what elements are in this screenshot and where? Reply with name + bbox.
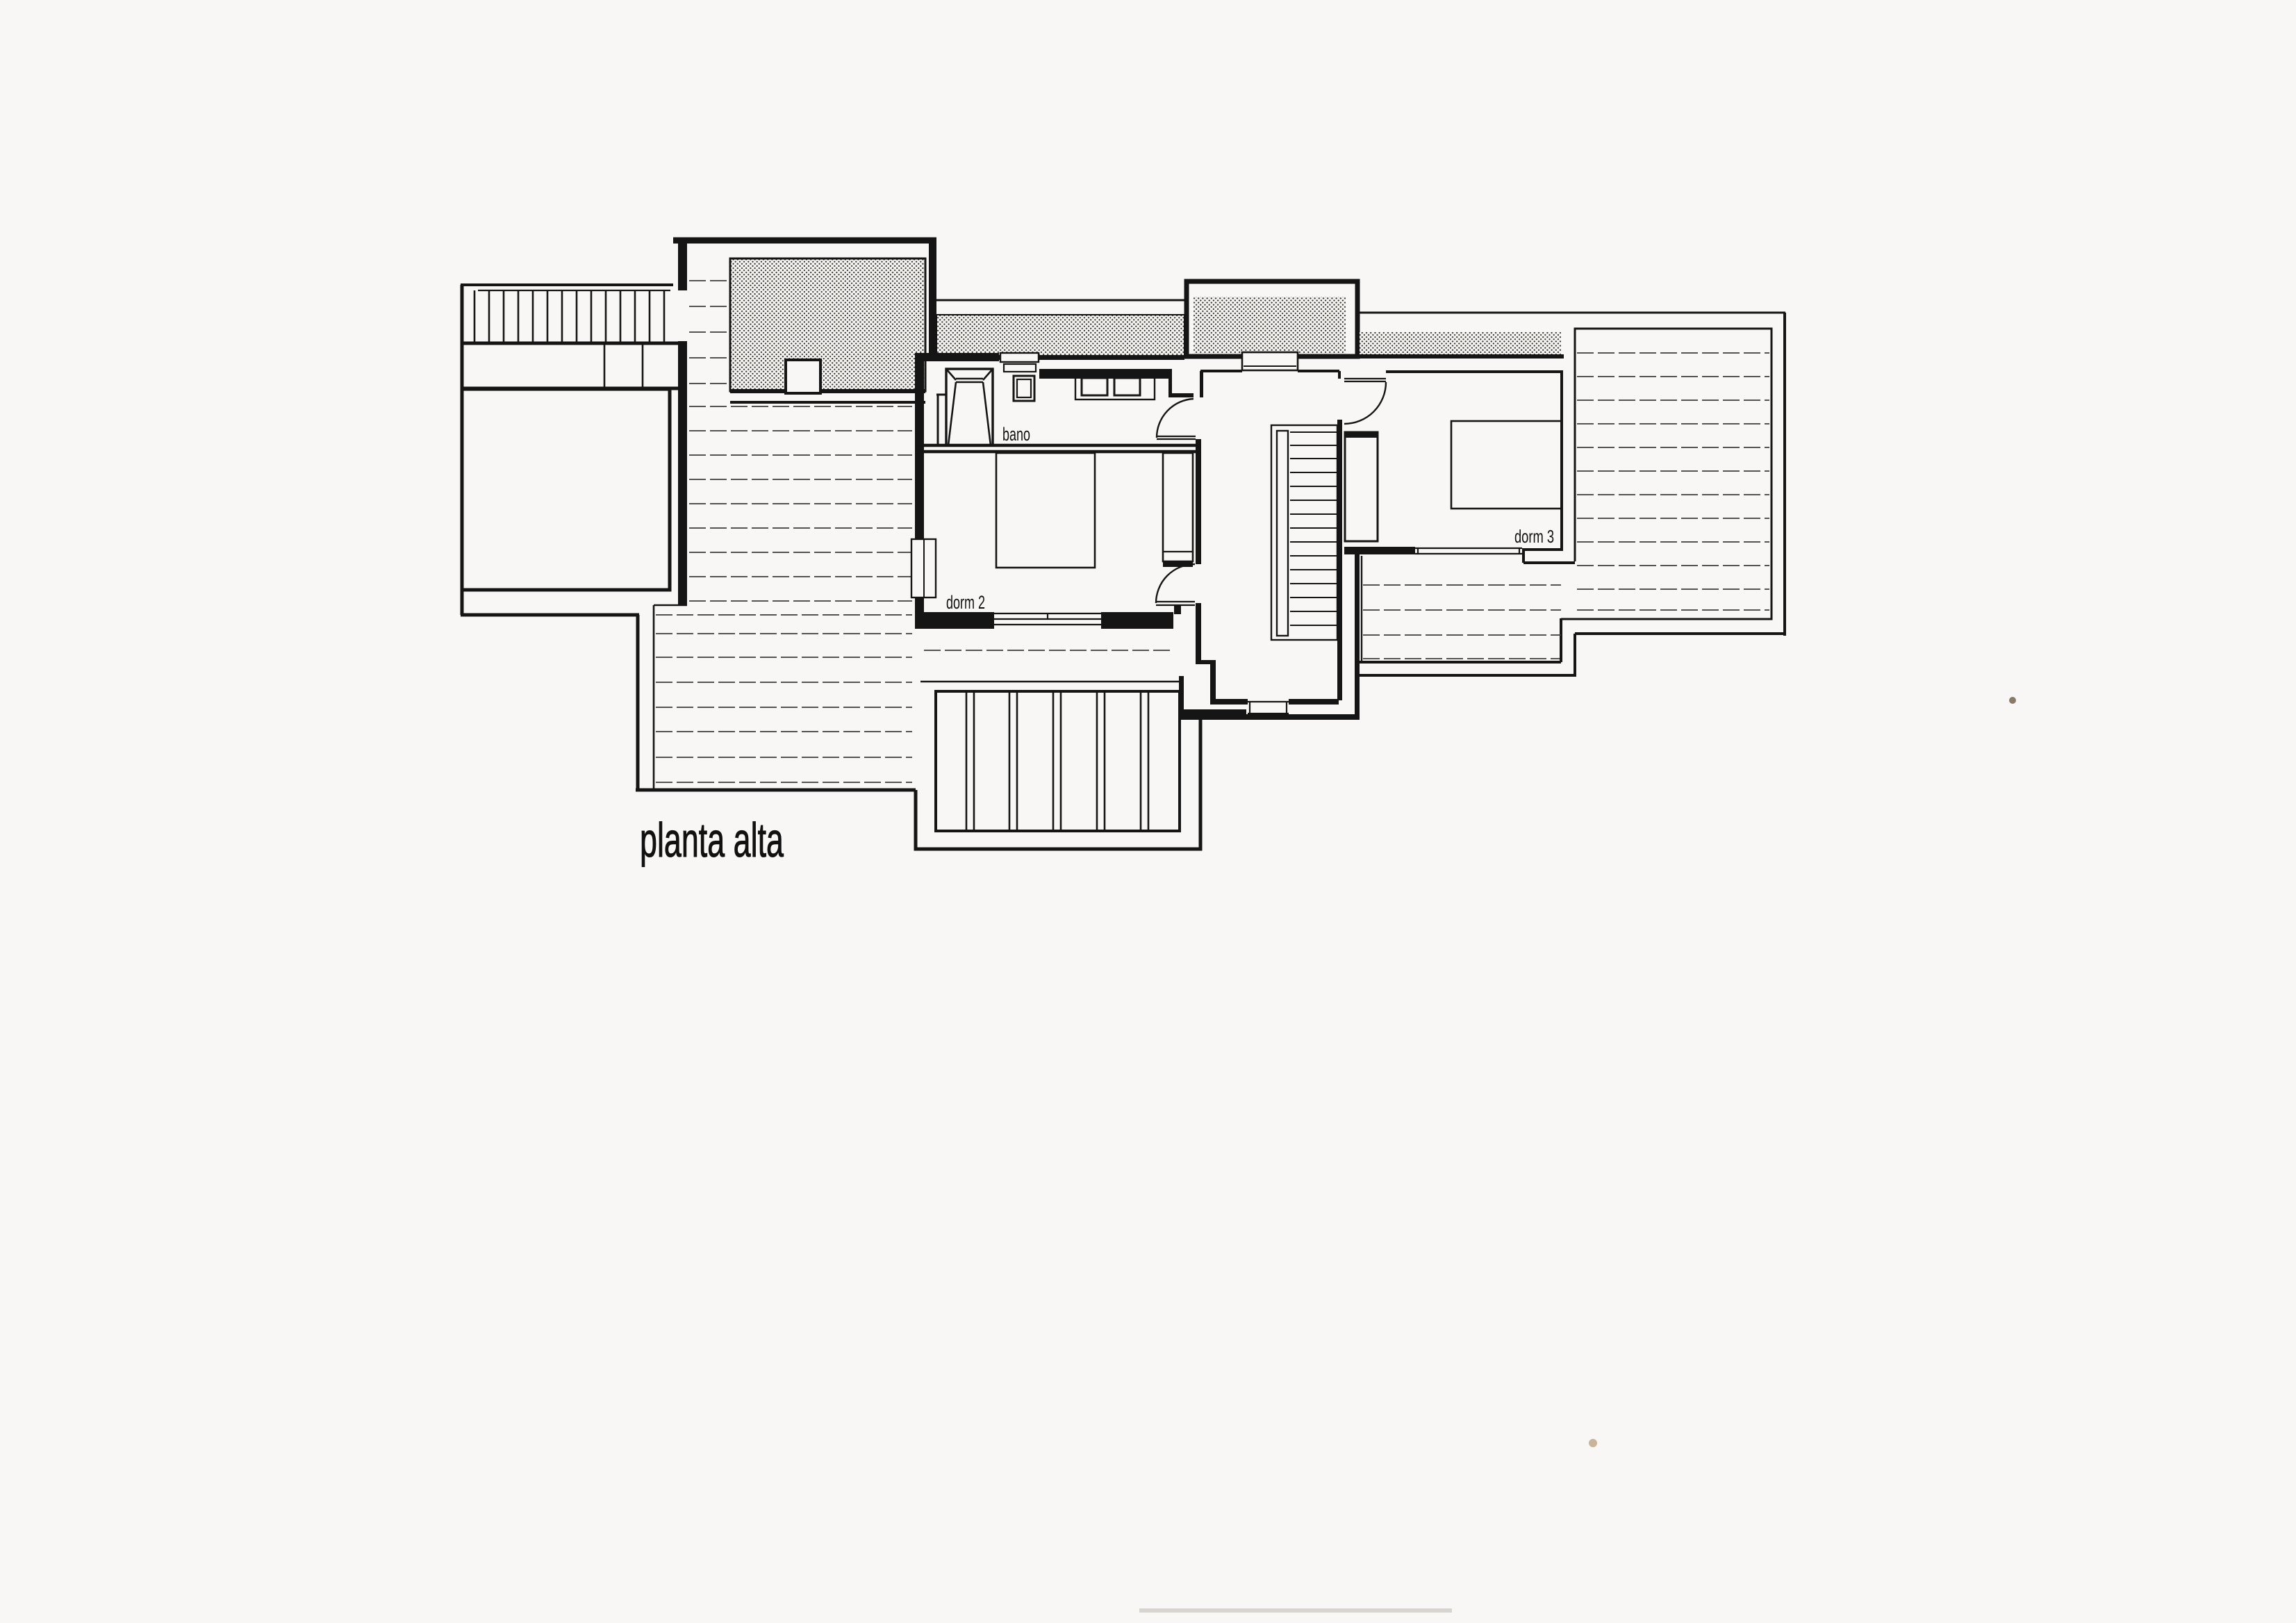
svg-text:dorm 2: dorm 2: [946, 592, 985, 613]
svg-text:dorm 3: dorm 3: [1514, 526, 1554, 547]
svg-text:bano: bano: [1002, 424, 1030, 445]
svg-text:planta alta: planta alta: [640, 813, 784, 867]
